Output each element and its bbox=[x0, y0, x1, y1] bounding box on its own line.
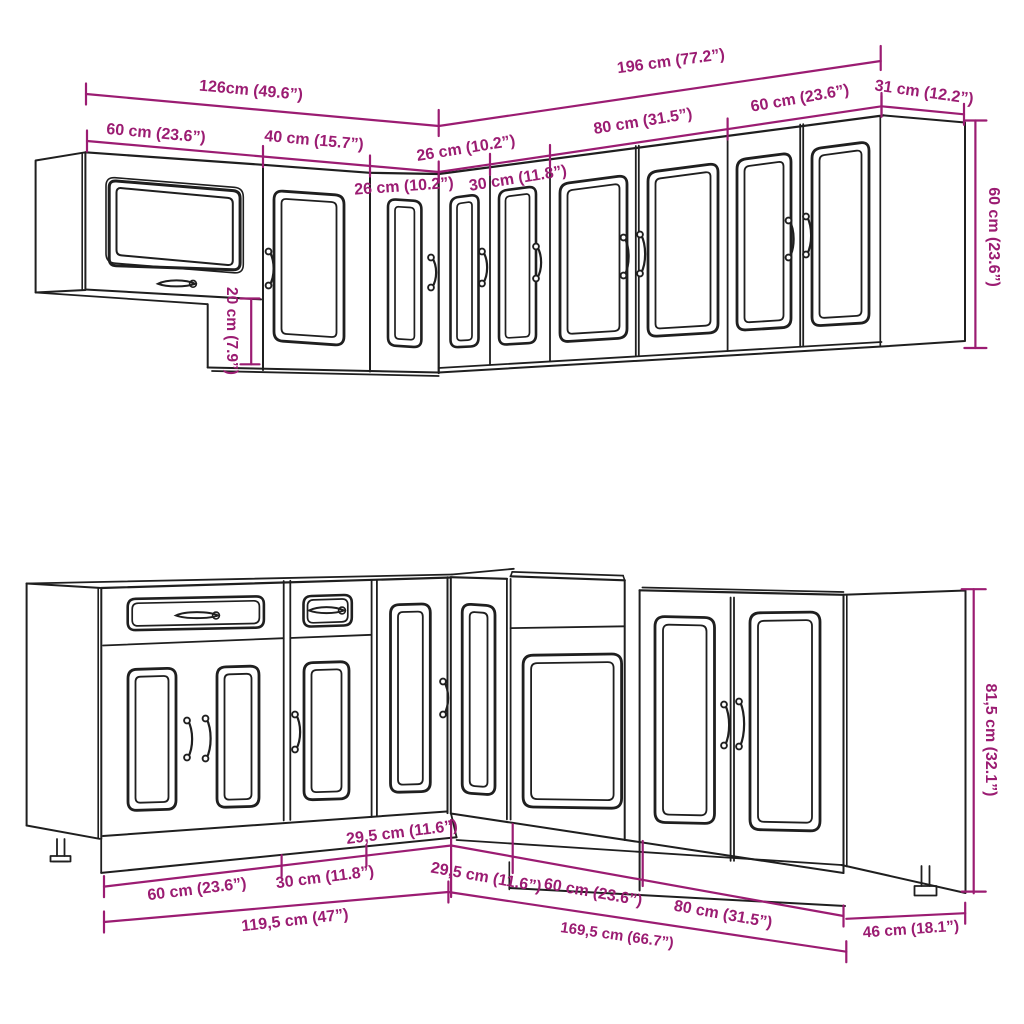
svg-text:81,5 cm (32.1”): 81,5 cm (32.1”) bbox=[982, 684, 999, 797]
svg-text:20 cm (7.9”): 20 cm (7.9”) bbox=[223, 287, 240, 375]
svg-text:60 cm (23.6”): 60 cm (23.6”) bbox=[985, 187, 1002, 287]
